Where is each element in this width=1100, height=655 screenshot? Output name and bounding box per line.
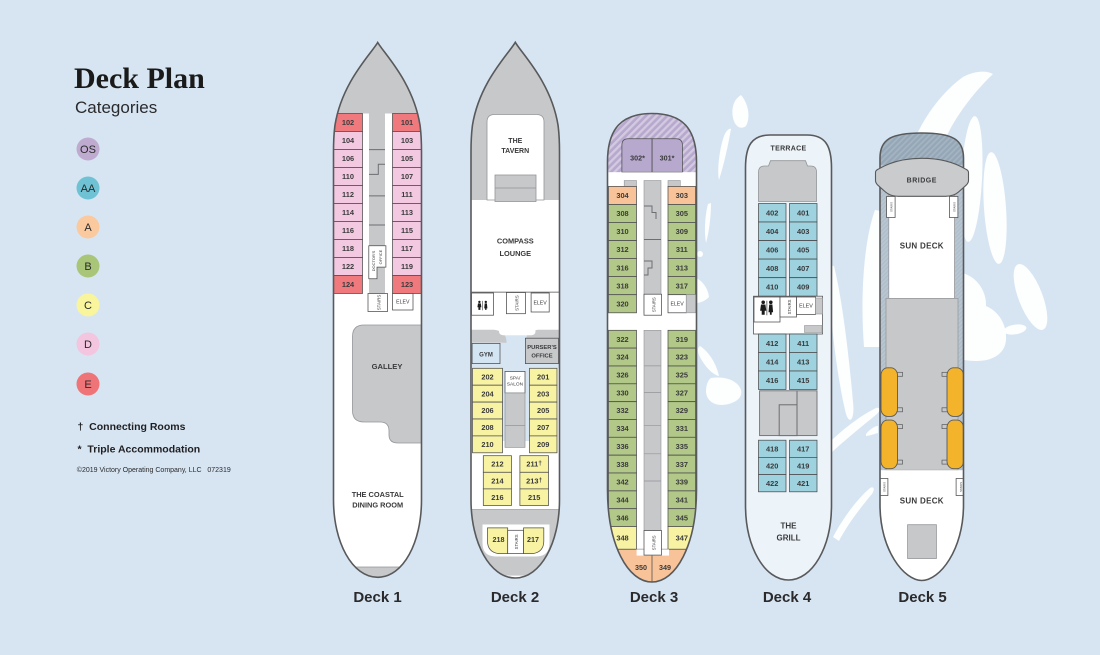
svg-text:413: 413: [797, 357, 809, 366]
svg-text:©2019 Victory Operating Compan: ©2019 Victory Operating Company, LLC 072…: [77, 466, 231, 474]
svg-text:338: 338: [616, 460, 628, 469]
svg-text:* Triple Accommodation: * Triple Accommodation: [78, 444, 201, 456]
svg-text:323: 323: [676, 353, 688, 362]
svg-text:Deck 3: Deck 3: [630, 589, 678, 606]
svg-text:330: 330: [616, 388, 628, 397]
svg-text:THE: THE: [781, 521, 798, 530]
svg-text:312: 312: [616, 245, 628, 254]
svg-text:316: 316: [616, 263, 628, 272]
svg-text:421: 421: [797, 479, 809, 488]
svg-text:206: 206: [481, 406, 493, 415]
svg-text:309: 309: [676, 227, 688, 236]
svg-text:106: 106: [342, 154, 354, 163]
svg-text:346: 346: [616, 513, 628, 522]
svg-text:313: 313: [676, 263, 688, 272]
svg-text:344: 344: [616, 495, 629, 504]
svg-text:410: 410: [766, 283, 778, 292]
svg-text:210: 210: [481, 440, 493, 449]
svg-text:417: 417: [797, 445, 809, 454]
svg-text:412: 412: [766, 339, 778, 348]
svg-text:336: 336: [616, 442, 628, 451]
svg-text:305: 305: [676, 209, 688, 218]
svg-text:A: A: [84, 222, 92, 234]
svg-text:329: 329: [676, 406, 688, 415]
svg-text:C: C: [84, 300, 92, 312]
svg-text:E: E: [84, 379, 91, 391]
svg-text:AA: AA: [81, 183, 96, 195]
svg-text:LOUNGE: LOUNGE: [499, 249, 531, 258]
svg-text:209: 209: [537, 440, 549, 449]
svg-text:STAIRS: STAIRS: [890, 202, 894, 212]
svg-text:STAIRS: STAIRS: [959, 482, 963, 492]
svg-text:102: 102: [342, 118, 354, 127]
svg-text:212: 212: [491, 460, 503, 469]
svg-text:SUN DECK: SUN DECK: [900, 242, 944, 251]
svg-text:324: 324: [616, 353, 629, 362]
svg-text:415: 415: [797, 376, 809, 385]
svg-text:401: 401: [797, 208, 809, 217]
svg-text:331: 331: [676, 424, 688, 433]
svg-text:SPA/: SPA/: [510, 376, 521, 382]
svg-text:Deck Plan: Deck Plan: [74, 62, 205, 95]
svg-text:Deck 1: Deck 1: [353, 589, 401, 606]
svg-text:114: 114: [342, 208, 355, 217]
svg-text:409: 409: [797, 283, 809, 292]
svg-text:335: 335: [676, 442, 688, 451]
svg-text:111: 111: [401, 190, 413, 199]
svg-text:110: 110: [342, 172, 354, 181]
svg-text:322: 322: [616, 335, 628, 344]
svg-text:405: 405: [797, 246, 809, 255]
svg-text:103: 103: [401, 136, 413, 145]
svg-text:404: 404: [766, 227, 779, 236]
svg-text:349: 349: [659, 563, 671, 572]
svg-text:DOCTOR'S: DOCTOR'S: [371, 250, 376, 271]
svg-text:116: 116: [342, 226, 354, 235]
svg-text:406: 406: [766, 246, 778, 255]
svg-text:414: 414: [766, 357, 779, 366]
svg-text:107: 107: [401, 172, 413, 181]
svg-text:BRIDGE: BRIDGE: [907, 178, 937, 185]
svg-text:STAIRS: STAIRS: [787, 299, 792, 314]
svg-text:419: 419: [797, 462, 809, 471]
svg-text:317: 317: [676, 281, 688, 290]
svg-text:202: 202: [481, 372, 493, 381]
svg-text:D: D: [84, 339, 92, 351]
svg-text:411: 411: [797, 339, 809, 348]
svg-text:347: 347: [676, 534, 688, 543]
svg-text:SUN DECK: SUN DECK: [900, 497, 944, 506]
svg-text:STAIRS: STAIRS: [514, 534, 519, 549]
svg-text:112: 112: [342, 190, 354, 199]
svg-text:STAIRS: STAIRS: [651, 535, 656, 550]
svg-text:304: 304: [616, 191, 629, 200]
svg-text:310: 310: [616, 227, 628, 236]
svg-text:OFFICE: OFFICE: [378, 249, 383, 264]
svg-text:216: 216: [491, 493, 503, 502]
svg-text:326: 326: [616, 371, 628, 380]
svg-text:Categories: Categories: [75, 98, 157, 117]
svg-text:422: 422: [766, 479, 778, 488]
svg-text:204: 204: [481, 389, 494, 398]
svg-text:115: 115: [401, 226, 413, 235]
svg-text:203: 203: [537, 389, 549, 398]
svg-text:348: 348: [616, 534, 628, 543]
svg-text:302*: 302*: [630, 154, 645, 163]
svg-text:420: 420: [766, 462, 778, 471]
svg-text:201: 201: [537, 372, 549, 381]
svg-text:205: 205: [537, 406, 549, 415]
svg-text:345: 345: [676, 513, 688, 522]
svg-text:TERRACE: TERRACE: [771, 146, 807, 153]
svg-text:STAIRS: STAIRS: [376, 295, 381, 311]
svg-text:118: 118: [342, 244, 354, 253]
svg-text:350: 350: [635, 563, 647, 572]
svg-text:COMPASS: COMPASS: [497, 237, 534, 246]
svg-text:Deck 5: Deck 5: [898, 589, 946, 606]
svg-text:THE: THE: [508, 138, 522, 145]
svg-text:311: 311: [676, 245, 688, 254]
svg-text:325: 325: [676, 371, 688, 380]
svg-text:PURSER'S: PURSER'S: [527, 345, 557, 351]
svg-text:OFFICE: OFFICE: [531, 354, 552, 360]
svg-text:217: 217: [527, 535, 539, 544]
svg-text:101: 101: [401, 118, 413, 127]
svg-text:402: 402: [766, 208, 778, 217]
svg-text:Deck 2: Deck 2: [491, 589, 539, 606]
svg-text:407: 407: [797, 264, 809, 273]
svg-text:122: 122: [342, 262, 354, 271]
svg-text:117: 117: [401, 244, 413, 253]
svg-text:408: 408: [766, 264, 778, 273]
svg-text:339: 339: [676, 478, 688, 487]
svg-text:DINING ROOM: DINING ROOM: [352, 501, 403, 510]
svg-text:214: 214: [491, 476, 504, 485]
svg-text:ELEV: ELEV: [670, 302, 684, 308]
svg-text:GRILL: GRILL: [777, 533, 801, 542]
svg-text:332: 332: [616, 406, 628, 415]
svg-text:403: 403: [797, 227, 809, 236]
svg-text:104: 104: [342, 136, 355, 145]
svg-text:119: 119: [401, 262, 413, 271]
svg-text:GALLEY: GALLEY: [372, 362, 403, 371]
svg-text:123: 123: [401, 280, 413, 289]
svg-text:SALON: SALON: [507, 382, 524, 388]
svg-text:STAIRS: STAIRS: [651, 297, 656, 312]
svg-text:ELEV: ELEV: [533, 300, 547, 306]
svg-text:THE COASTAL: THE COASTAL: [352, 490, 404, 499]
svg-text:124: 124: [342, 280, 355, 289]
svg-text:416: 416: [766, 376, 778, 385]
svg-text:334: 334: [616, 424, 629, 433]
svg-text:342: 342: [616, 478, 628, 487]
svg-text:ELEV: ELEV: [396, 300, 410, 306]
svg-text:341: 341: [676, 495, 688, 504]
svg-text:418: 418: [766, 445, 778, 454]
svg-text:215: 215: [528, 493, 540, 502]
svg-text:† Connecting Rooms: † Connecting Rooms: [78, 421, 186, 433]
svg-text:OS: OS: [80, 144, 96, 156]
svg-text:320: 320: [616, 299, 628, 308]
svg-text:318: 318: [616, 281, 628, 290]
svg-text:ELEV: ELEV: [799, 304, 813, 310]
svg-text:STAIRS: STAIRS: [952, 202, 956, 212]
svg-text:STAIRS: STAIRS: [882, 482, 886, 492]
svg-text:301*: 301*: [660, 154, 675, 163]
svg-text:218: 218: [493, 535, 505, 544]
svg-text:303: 303: [676, 191, 688, 200]
svg-text:Deck 4: Deck 4: [763, 589, 812, 606]
svg-text:207: 207: [537, 423, 549, 432]
svg-text:319: 319: [676, 335, 688, 344]
svg-text:GYM: GYM: [479, 353, 493, 359]
svg-text:B: B: [84, 261, 91, 273]
svg-text:TAVERN: TAVERN: [501, 148, 529, 155]
svg-text:105: 105: [401, 154, 413, 163]
svg-text:327: 327: [676, 388, 688, 397]
svg-text:113: 113: [401, 208, 413, 217]
svg-text:STAIRS: STAIRS: [515, 295, 520, 311]
svg-text:337: 337: [676, 460, 688, 469]
svg-text:208: 208: [481, 423, 493, 432]
svg-text:308: 308: [616, 209, 628, 218]
